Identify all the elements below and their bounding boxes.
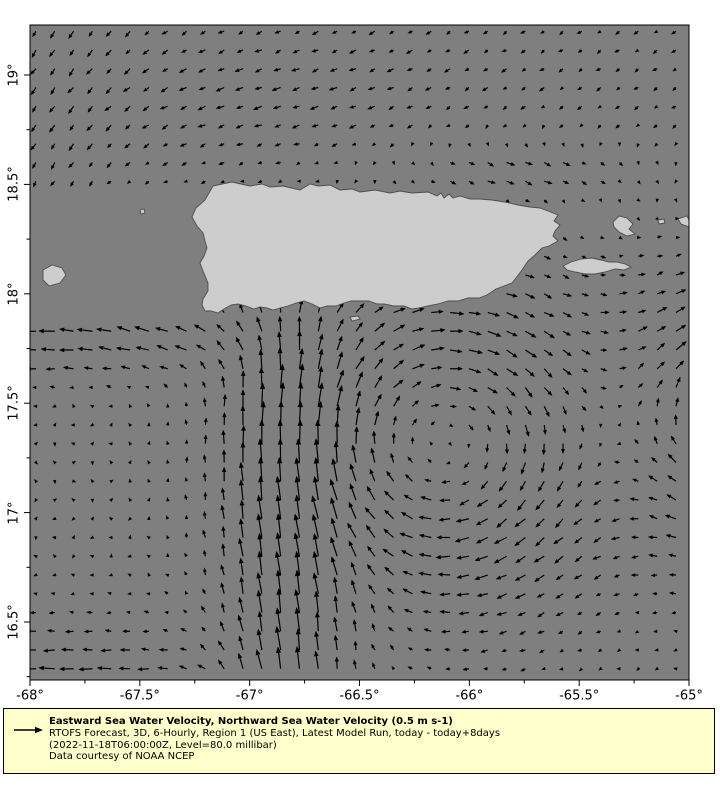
legend-text: Eastward Sea Water Velocity, Northward S… — [49, 716, 708, 763]
legend-box: Eastward Sea Water Velocity, Northward S… — [3, 708, 715, 774]
y-tick-label: 19° — [7, 63, 22, 86]
sea-area — [30, 25, 689, 680]
legend-subtitle: RTOFS Forecast, 3D, 6-Hourly, Region 1 (… — [49, 728, 708, 740]
legend-credit: Data courtesy of NOAA NCEP — [49, 751, 708, 763]
x-tick-label: -68° — [16, 689, 44, 704]
ocean-velocity-figure: -68°-67.5°-67°-66.5°-66°-65.5°-65°19°18.… — [0, 0, 720, 800]
x-tick-label: -66.5° — [339, 689, 379, 704]
y-tick-label: 17.5° — [7, 385, 22, 420]
reference-arrow-icon — [12, 724, 46, 736]
island-desecheo — [140, 209, 145, 214]
legend-run-info: (2022-11-18T06:00:00Z, Level=80.0 millib… — [49, 740, 708, 752]
y-tick-label: 18° — [7, 282, 22, 305]
x-tick-label: -67° — [236, 689, 264, 704]
x-tick-label: -67.5° — [120, 689, 160, 704]
y-tick-label: 17° — [7, 501, 22, 524]
y-tick-label: 16.5° — [7, 604, 22, 639]
legend-title: Eastward Sea Water Velocity, Northward S… — [49, 716, 708, 728]
x-tick-label: -65.5° — [559, 689, 599, 704]
x-tick-label: -66° — [455, 689, 483, 704]
island-small-cay — [658, 219, 665, 224]
x-tick-label: -65° — [675, 689, 703, 704]
velocity-quiver-map — [0, 0, 720, 706]
y-tick-label: 18.5° — [7, 167, 22, 202]
